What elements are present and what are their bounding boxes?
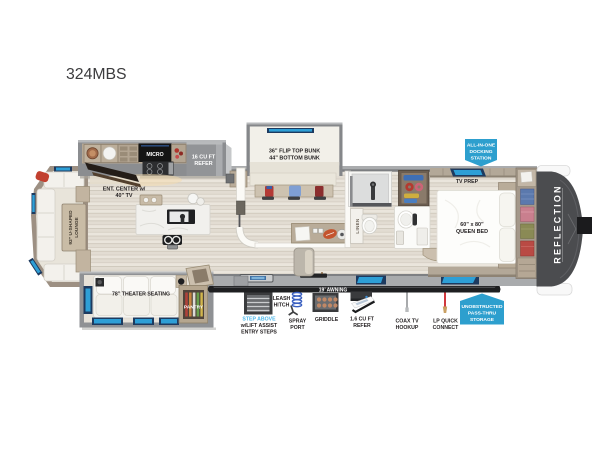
svg-text:TV PREP: TV PREP bbox=[456, 179, 479, 185]
svg-text:UNOBSTRUCTED: UNOBSTRUCTED bbox=[461, 304, 502, 310]
svg-text:LEASH: LEASH bbox=[273, 296, 291, 302]
svg-text:SPRAY: SPRAY bbox=[289, 319, 307, 325]
svg-text:16 CU FT: 16 CU FT bbox=[192, 155, 216, 161]
svg-text:92” U-SHAPED: 92” U-SHAPED bbox=[68, 210, 74, 245]
svg-text:STORAGE: STORAGE bbox=[470, 317, 495, 323]
svg-text:REFER: REFER bbox=[353, 323, 371, 329]
svg-text:PORT: PORT bbox=[290, 325, 305, 331]
svg-text:LOUNGE: LOUNGE bbox=[74, 216, 80, 237]
svg-text:ENT. CENTER w/: ENT. CENTER w/ bbox=[103, 187, 146, 193]
svg-text:STATION: STATION bbox=[471, 156, 492, 162]
svg-text:78” THEATER SEATING: 78” THEATER SEATING bbox=[112, 292, 170, 298]
svg-text:QUEEN BED: QUEEN BED bbox=[456, 229, 488, 235]
svg-text:LP QUICK: LP QUICK bbox=[433, 319, 458, 325]
svg-text:w/LIFT ASSIST: w/LIFT ASSIST bbox=[240, 323, 278, 329]
svg-text:LINEN: LINEN bbox=[355, 218, 360, 233]
svg-text:HITCH: HITCH bbox=[274, 303, 290, 309]
svg-text:324MBS: 324MBS bbox=[66, 66, 127, 83]
svg-text:STEP ABOVE: STEP ABOVE bbox=[242, 317, 276, 323]
svg-text:DOCKING: DOCKING bbox=[469, 149, 492, 155]
svg-text:GRIDDLE: GRIDDLE bbox=[315, 317, 339, 323]
svg-text:CONNECT: CONNECT bbox=[433, 325, 459, 331]
svg-text:60” x 80”: 60” x 80” bbox=[460, 222, 484, 228]
svg-text:40” TV: 40” TV bbox=[115, 193, 132, 199]
svg-text:19’ AWNING: 19’ AWNING bbox=[319, 288, 348, 294]
svg-text:HOOKUP: HOOKUP bbox=[396, 325, 419, 331]
svg-text:1.6 CU FT: 1.6 CU FT bbox=[350, 317, 375, 323]
svg-text:PASS-THRU: PASS-THRU bbox=[468, 311, 497, 317]
svg-text:36” FLIP TOP BUNK: 36” FLIP TOP BUNK bbox=[269, 149, 320, 155]
svg-text:ALL-IN-ONE: ALL-IN-ONE bbox=[467, 143, 496, 149]
svg-text:MICRO: MICRO bbox=[146, 152, 163, 158]
svg-text:REFLECTION: REFLECTION bbox=[553, 184, 563, 264]
svg-text:REFER: REFER bbox=[194, 161, 212, 167]
svg-text:44” BOTTOM BUNK: 44” BOTTOM BUNK bbox=[269, 156, 320, 162]
svg-text:COAX TV: COAX TV bbox=[395, 319, 419, 325]
svg-text:PANTRY: PANTRY bbox=[184, 305, 204, 311]
svg-text:ENTRY STEPS: ENTRY STEPS bbox=[241, 330, 277, 336]
